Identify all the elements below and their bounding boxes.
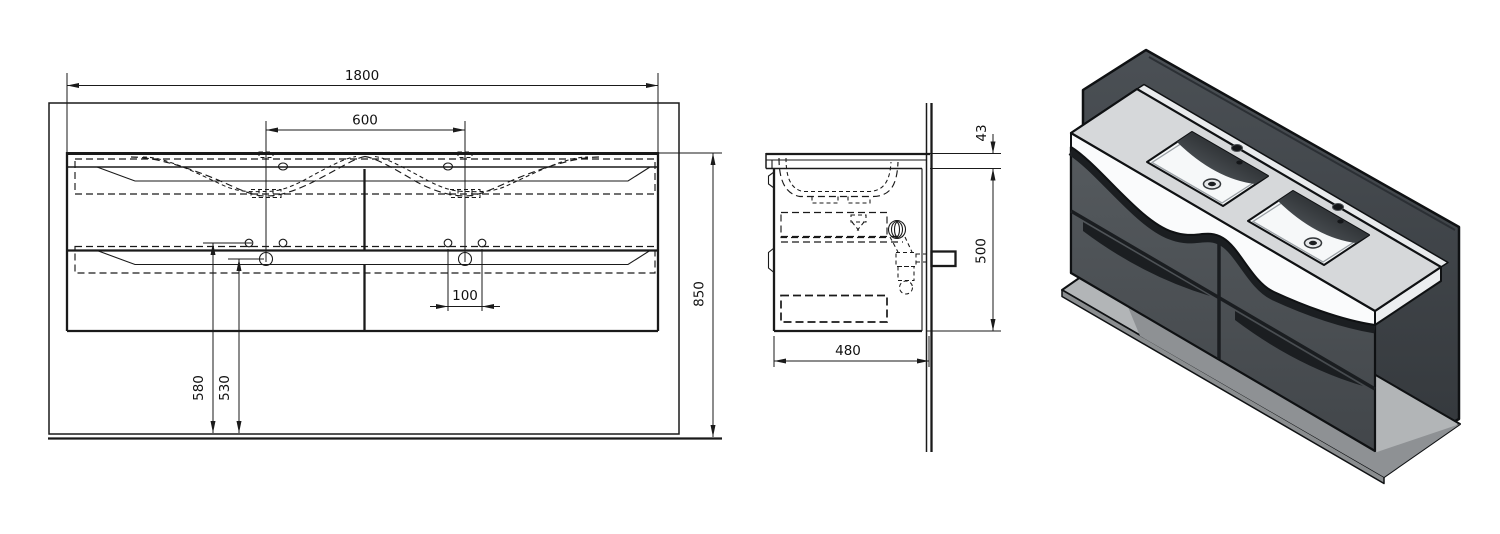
dim-label-580: 580 (191, 375, 207, 401)
dim-label-480: 480 (835, 343, 861, 359)
trap-upper (896, 253, 916, 267)
front-view: 1800 600 100 850 (48, 68, 722, 439)
left-basin-curve (131, 157, 365, 197)
bowl-section-inner (786, 158, 891, 192)
siphon-assembly-hidden (851, 215, 956, 294)
dim-hole-height-b: 530 (217, 259, 264, 433)
cabinet-front-outline (67, 152, 658, 331)
trap-lower (898, 267, 914, 281)
dim-top-thickness: 43 (930, 124, 1001, 331)
dim-mounting-height: 850 (658, 153, 722, 437)
side-washbasin (766, 153, 930, 203)
right-basin-curve (365, 157, 600, 197)
technical-drawing-svg: 1800 600 100 850 (0, 0, 1500, 534)
wall-drain-stub (932, 252, 956, 267)
lower-drawer-box-hidden (781, 296, 887, 323)
dim-label-530: 530 (217, 375, 233, 401)
side-view: 43 500 480 (766, 103, 1001, 452)
dim-label-1800: 1800 (345, 68, 379, 84)
right-faucet-hole (1333, 204, 1344, 211)
left-faucet-hole (1232, 145, 1243, 152)
dim-label-100: 100 (452, 288, 478, 304)
dim-label-43: 43 (974, 124, 990, 141)
valve-fitting (851, 215, 866, 222)
dim-label-850: 850 (692, 281, 708, 307)
dim-label-600: 600 (352, 113, 378, 129)
dim-label-500: 500 (974, 238, 990, 264)
bowl-section-outer (779, 158, 898, 197)
dim-overall-width: 1800 (67, 68, 658, 152)
upper-drawer-box-hidden (781, 213, 887, 238)
dim-depth: 480 (774, 336, 929, 367)
upper-drawer-groove (97, 167, 650, 181)
isometric-view (1062, 50, 1460, 484)
drawing-canvas: 1800 600 100 850 (0, 0, 1500, 534)
lower-drawer-groove (97, 251, 650, 265)
dim-hole-height-a: 580 (191, 243, 252, 433)
